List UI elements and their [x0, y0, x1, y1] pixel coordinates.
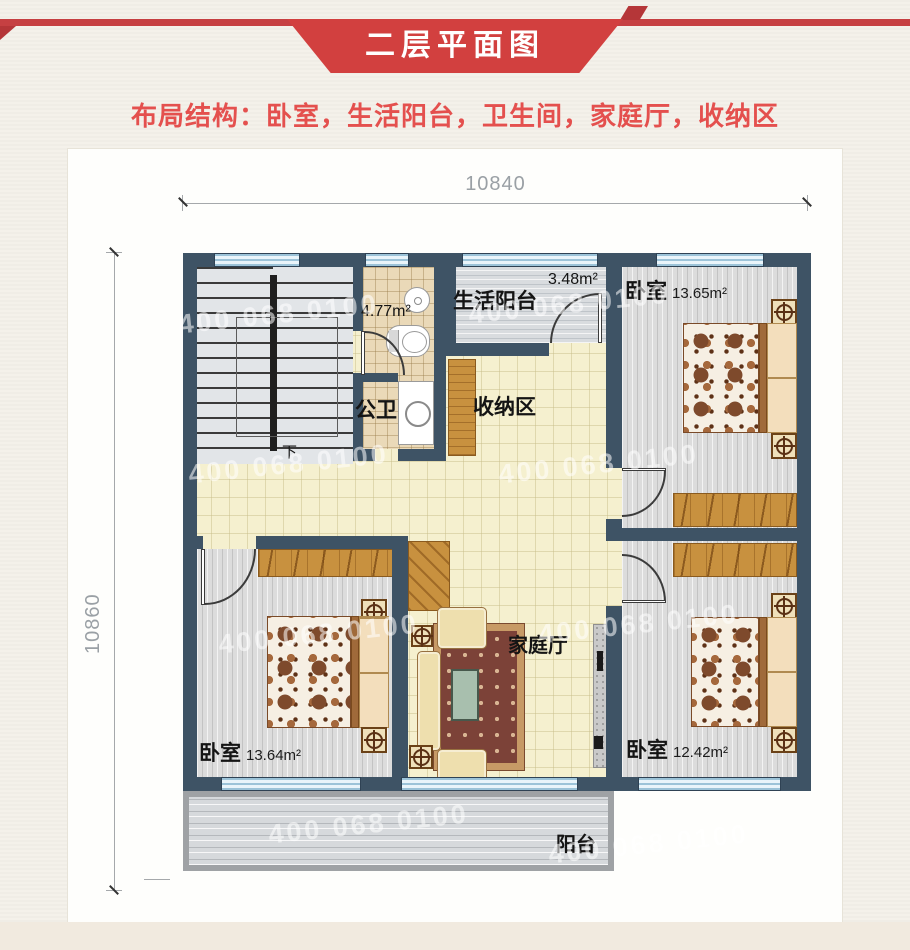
wall-segment [392, 549, 408, 777]
dimension-left: 10860 [82, 484, 105, 654]
bed-duvet [683, 323, 759, 433]
floorplan-panel: 10840 10860 阳台 [67, 148, 843, 935]
decor-icon [413, 749, 430, 766]
nightstand [771, 593, 797, 619]
room-name: 卧室 [199, 737, 241, 767]
wardrobe-bedroom-bottom-left [258, 549, 406, 577]
sofa-main [417, 651, 441, 751]
wall-segment [446, 343, 549, 356]
room-name: 卧室 [626, 734, 668, 764]
wardrobe-bedroom-top-right [673, 493, 797, 527]
dimension-left-line [114, 253, 115, 891]
lamp-icon [776, 438, 793, 455]
nightstand [771, 433, 797, 459]
storage-cabinet [448, 359, 476, 456]
nightstand [771, 299, 797, 325]
wall-segment [197, 536, 203, 549]
tv-unit [597, 651, 603, 671]
window [214, 253, 300, 267]
room-area: 12.42m² [673, 744, 728, 761]
bed-pillows [767, 323, 797, 433]
room-area: 13.64m² [246, 747, 301, 764]
page: 二层平面图 布局结构：卧室，生活阳台，卫生间，家庭厅，收纳区 10840 108… [0, 0, 910, 950]
wall-segment [256, 536, 408, 549]
dimension-top: 10840 [183, 173, 808, 196]
lamp-icon [776, 598, 793, 615]
page-footer-band [0, 922, 910, 950]
tv-unit [594, 736, 603, 749]
window [638, 777, 781, 791]
washer-drum [405, 401, 431, 427]
lamp-icon [776, 304, 793, 321]
bed-pillows [767, 617, 797, 727]
header-ribbon-left-fold [0, 26, 16, 40]
side-table [409, 745, 433, 769]
bedroom-bottom-left-label: 卧室 13.64m² [199, 737, 301, 767]
wall-segment [606, 528, 797, 541]
wall-segment [434, 356, 446, 461]
header-ribbon-right-fold [620, 6, 648, 20]
sink-drain [414, 297, 422, 305]
window [656, 253, 764, 267]
nightstand [771, 727, 797, 753]
toilet-bowl [402, 331, 427, 353]
nightstand [361, 727, 387, 753]
storage-label: 收纳区 [473, 391, 536, 421]
bed-frame [759, 617, 767, 727]
dimension-top-slash-left [178, 197, 188, 207]
bathroom-label: 公卫 [355, 394, 397, 424]
lamp-icon [366, 732, 383, 749]
bedroom-bottom-right-label: 卧室 12.42m² [626, 734, 728, 764]
wall-segment [398, 449, 446, 461]
coffee-table [451, 669, 479, 721]
sofa-seat-top [437, 607, 487, 649]
window [221, 777, 361, 791]
room-area: 13.65m² [672, 285, 727, 302]
window [462, 253, 598, 267]
dimension-top-line [183, 203, 808, 204]
door-leaf [622, 600, 666, 603]
washing-machine-icon [398, 381, 434, 445]
corner-cabinet [408, 541, 450, 611]
dimension-extension-line [144, 879, 170, 880]
lamp-icon [776, 732, 793, 749]
stair-rail [236, 317, 338, 437]
window [401, 777, 578, 791]
wardrobe-bedroom-bottom-right [673, 543, 797, 577]
page-title: 二层平面图 [287, 19, 623, 73]
window [365, 253, 409, 267]
layout-summary: 布局结构：卧室，生活阳台，卫生间，家庭厅，收纳区 [0, 96, 910, 133]
bed-frame [759, 323, 767, 433]
